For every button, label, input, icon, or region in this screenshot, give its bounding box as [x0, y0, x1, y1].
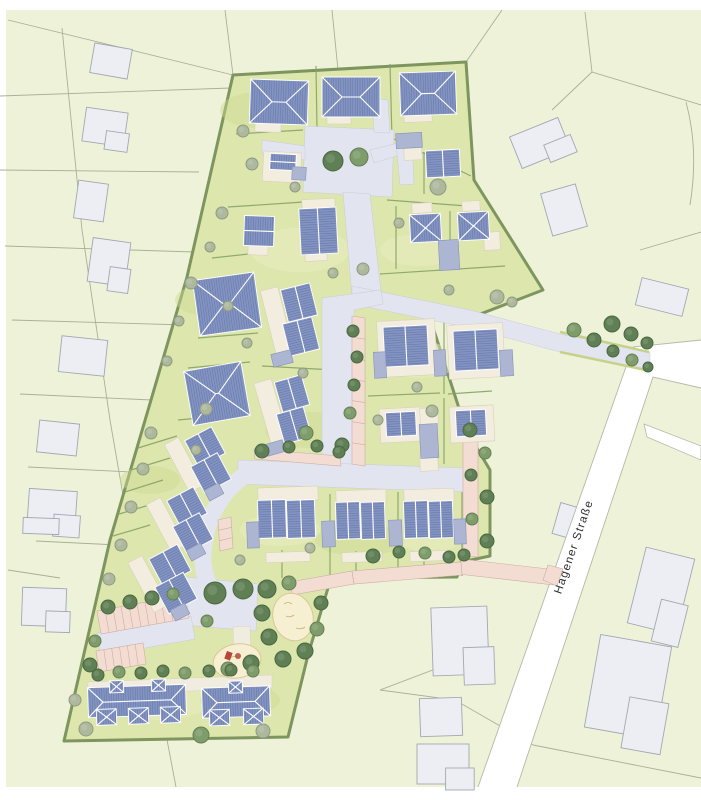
play-equipment: [235, 653, 241, 659]
garage-building: [373, 352, 386, 379]
existing-building: [90, 43, 133, 79]
garage-building: [247, 522, 260, 548]
tree-icon: [282, 576, 296, 590]
tree-icon: [463, 423, 477, 437]
tree-icon: [290, 182, 300, 192]
tree-icon: [394, 218, 404, 228]
house-roof: [383, 325, 429, 367]
tree-icon: [333, 446, 345, 458]
tree-icon: [193, 727, 209, 743]
tree-icon: [242, 338, 252, 348]
tree-icon: [203, 665, 215, 677]
tree-icon: [167, 588, 179, 600]
tree-icon: [624, 327, 638, 341]
tree-icon: [373, 415, 383, 425]
site-plan-map: Hagener Straße: [0, 0, 701, 800]
tree-icon: [507, 297, 517, 307]
house-roof: [457, 211, 489, 241]
tree-icon: [465, 469, 477, 481]
garage-building: [499, 350, 513, 377]
tree-icon: [223, 301, 233, 311]
tree-icon: [480, 534, 494, 548]
tree-icon: [311, 440, 323, 452]
tree-icon: [157, 665, 169, 677]
tree-icon: [216, 207, 228, 219]
tree-icon: [258, 580, 276, 598]
garage-building: [433, 350, 446, 377]
tree-icon: [246, 158, 258, 170]
house-roof: [322, 77, 380, 117]
house-roof: [428, 501, 453, 539]
tree-icon: [443, 551, 455, 563]
tree-icon: [344, 407, 356, 419]
existing-building: [58, 336, 108, 377]
tree-icon: [283, 441, 295, 453]
tree-icon: [323, 151, 343, 171]
house-roof: [385, 411, 416, 437]
garage-building: [396, 132, 423, 148]
tree-icon: [607, 345, 619, 357]
tree-icon: [135, 667, 147, 679]
tree-icon: [200, 403, 212, 415]
tree-icon: [626, 354, 638, 366]
tree-icon: [79, 722, 93, 736]
tree-icon: [366, 549, 380, 563]
tree-icon: [426, 405, 438, 417]
house-roof: [243, 215, 274, 246]
garage-building: [389, 520, 403, 546]
house-roof: [299, 207, 338, 255]
tree-icon: [567, 323, 581, 337]
tree-icon: [113, 666, 125, 678]
existing-building: [74, 180, 109, 222]
tree-icon: [256, 724, 270, 738]
tree-icon: [185, 277, 197, 289]
tree-icon: [235, 555, 245, 565]
tree-icon: [162, 356, 172, 366]
house-roof: [249, 79, 309, 125]
existing-building: [23, 517, 60, 534]
tree-icon: [350, 148, 368, 166]
tree-icon: [201, 615, 213, 627]
tree-icon: [419, 547, 431, 559]
house-roof: [257, 500, 286, 539]
tree-icon: [314, 596, 328, 610]
existing-building: [419, 697, 462, 736]
existing-building: [431, 606, 495, 686]
garage-building: [419, 424, 439, 459]
tree-icon: [101, 600, 115, 614]
tree-icon: [255, 444, 269, 458]
existing-building: [417, 744, 474, 790]
house-roof: [425, 149, 460, 178]
house-roof: [399, 71, 456, 116]
tree-icon: [179, 667, 191, 679]
garage-building: [438, 239, 460, 270]
tree-icon: [191, 445, 201, 455]
existing-building: [21, 587, 71, 632]
house-roof: [184, 361, 251, 425]
house-roof: [409, 213, 441, 243]
tree-icon: [254, 605, 270, 621]
tree-icon: [458, 549, 470, 561]
tree-icon: [275, 651, 291, 667]
garage-building: [454, 519, 467, 544]
tree-icon: [641, 337, 653, 349]
tree-icon: [103, 573, 115, 585]
house-roof: [403, 501, 428, 539]
tree-icon: [490, 290, 504, 304]
garage-building: [322, 521, 336, 547]
tree-icon: [643, 362, 653, 372]
tree-icon: [69, 694, 81, 706]
tree-icon: [115, 539, 127, 551]
tree-icon: [328, 268, 338, 278]
tree-icon: [145, 591, 159, 605]
tree-icon: [174, 316, 184, 326]
existing-building: [36, 420, 79, 456]
site-plan-page: Hagener Straße: [0, 0, 701, 800]
tree-icon: [92, 669, 104, 681]
tree-icon: [237, 125, 249, 137]
tree-icon: [604, 316, 620, 332]
tree-icon: [225, 664, 237, 676]
tree-icon: [444, 285, 454, 295]
tree-icon: [351, 351, 363, 363]
tree-icon: [298, 368, 308, 378]
tree-icon: [430, 179, 446, 195]
tree-icon: [347, 325, 359, 337]
house-roof: [335, 502, 360, 540]
tree-icon: [247, 665, 259, 677]
tree-icon: [479, 447, 491, 459]
tree-icon: [305, 543, 315, 553]
tree-icon: [145, 427, 157, 439]
tree-icon: [205, 242, 215, 252]
tree-icon: [587, 333, 601, 347]
tree-icon: [466, 513, 478, 525]
tree-icon: [137, 463, 149, 475]
tree-icon: [89, 635, 101, 647]
tree-icon: [393, 546, 405, 558]
tree-icon: [348, 379, 360, 391]
tree-icon: [297, 643, 313, 659]
tree-icon: [233, 579, 253, 599]
tree-icon: [310, 622, 324, 636]
tree-icon: [123, 595, 137, 609]
house-roof: [453, 329, 499, 371]
tree-icon: [480, 490, 494, 504]
garage-building: [292, 167, 307, 181]
house-roof: [360, 502, 385, 540]
tree-icon: [125, 501, 137, 513]
tree-icon: [299, 426, 313, 440]
house-roof: [286, 500, 315, 539]
tree-icon: [412, 382, 422, 392]
tree-icon: [357, 263, 369, 275]
tree-icon: [261, 629, 277, 645]
tree-icon: [204, 582, 226, 604]
